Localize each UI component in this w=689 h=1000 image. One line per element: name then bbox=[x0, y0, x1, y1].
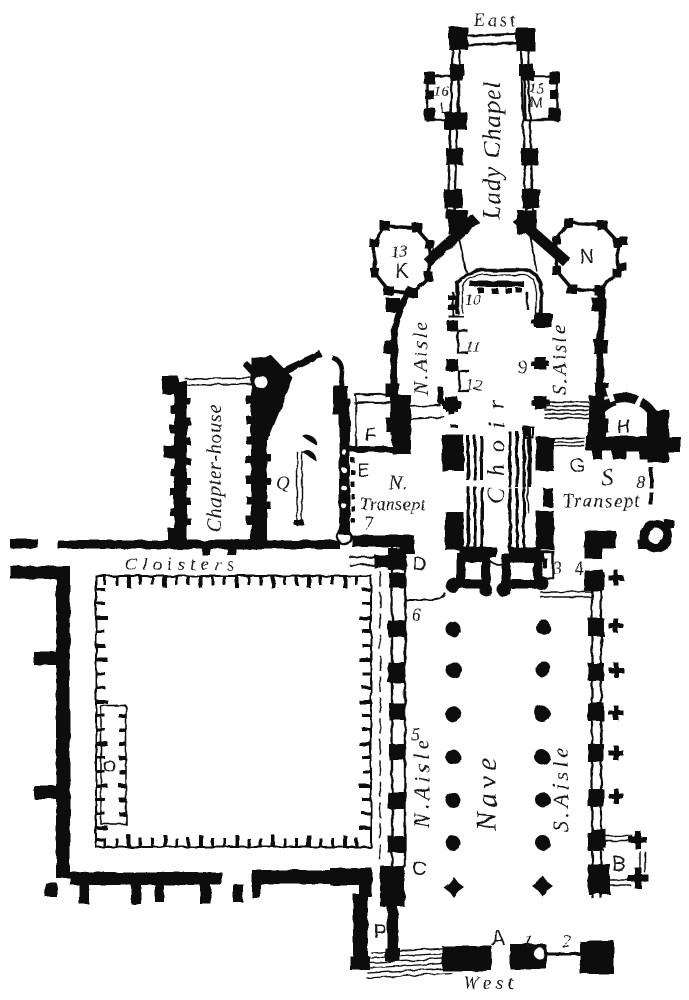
svg-text:N.Aisle: N.Aisle bbox=[410, 319, 432, 396]
svg-text:E: E bbox=[357, 460, 369, 480]
svg-text:13: 13 bbox=[391, 242, 408, 261]
svg-text:11: 11 bbox=[466, 339, 481, 356]
svg-text:West: West bbox=[463, 973, 518, 994]
svg-text:H: H bbox=[617, 417, 631, 438]
svg-text:K: K bbox=[395, 260, 409, 283]
svg-text:G: G bbox=[570, 456, 585, 477]
svg-text:A: A bbox=[491, 927, 505, 950]
svg-text:Chapter-house: Chapter-house bbox=[204, 404, 226, 533]
svg-text:4: 4 bbox=[574, 558, 583, 578]
svg-text:12: 12 bbox=[466, 377, 482, 394]
svg-text:7: 7 bbox=[364, 513, 374, 533]
svg-text:10: 10 bbox=[465, 292, 481, 309]
svg-text:S: S bbox=[601, 465, 613, 491]
svg-text:Cloisters: Cloisters bbox=[125, 554, 240, 574]
svg-text:B: B bbox=[612, 853, 626, 876]
svg-text:P: P bbox=[374, 922, 387, 943]
svg-text:Choir: Choir bbox=[484, 388, 510, 504]
svg-text:N.: N. bbox=[388, 472, 407, 494]
svg-text:C: C bbox=[412, 858, 426, 880]
svg-text:Lady Chapel: Lady Chapel bbox=[479, 80, 506, 220]
svg-text:Nave: Nave bbox=[472, 753, 503, 832]
svg-text:Transept: Transept bbox=[360, 494, 426, 514]
svg-text:S.Aisle: S.Aisle bbox=[549, 323, 571, 396]
svg-text:F: F bbox=[365, 425, 376, 445]
svg-text:16: 16 bbox=[434, 84, 450, 100]
svg-text:M: M bbox=[530, 94, 543, 111]
svg-text:1: 1 bbox=[524, 931, 533, 951]
svg-text:Q: Q bbox=[276, 473, 290, 494]
svg-text:9: 9 bbox=[518, 357, 527, 377]
svg-text:N.Aisle: N.Aisle bbox=[409, 736, 434, 829]
svg-text:East: East bbox=[473, 10, 518, 30]
svg-text:O: O bbox=[103, 757, 116, 776]
svg-text:S.Aisle: S.Aisle bbox=[548, 744, 573, 833]
svg-text:Transept: Transept bbox=[563, 491, 642, 512]
svg-text:6: 6 bbox=[412, 605, 421, 625]
svg-text:2: 2 bbox=[562, 931, 571, 951]
svg-text:D: D bbox=[413, 554, 426, 574]
svg-text:N: N bbox=[579, 245, 594, 268]
svg-text:8: 8 bbox=[636, 472, 645, 492]
